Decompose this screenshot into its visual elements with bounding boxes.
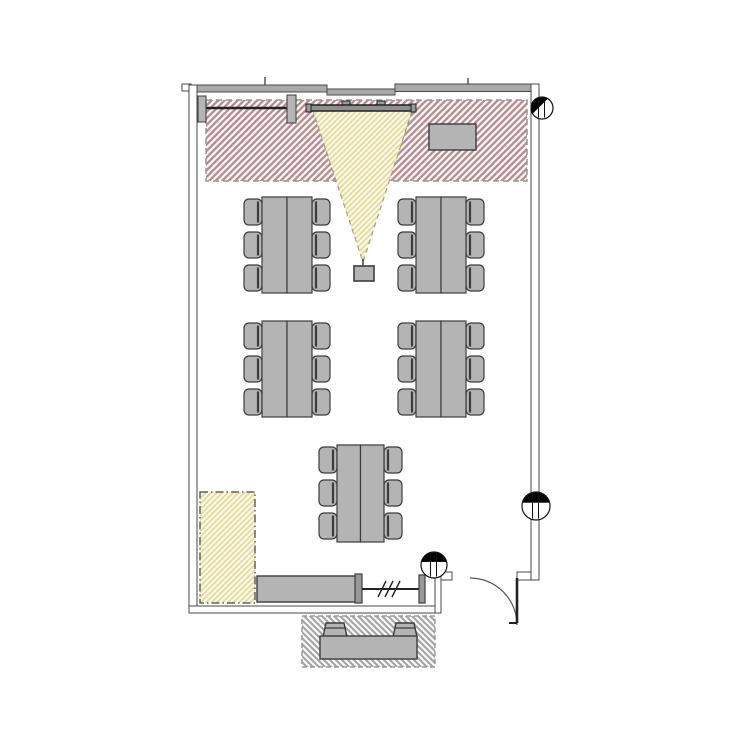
marker-filled-segment <box>422 552 447 561</box>
chair <box>244 323 262 349</box>
chair <box>466 265 484 291</box>
chair <box>312 199 330 225</box>
chair <box>398 232 416 258</box>
chair <box>244 356 262 382</box>
wall-top-a <box>189 85 327 92</box>
chair <box>398 356 416 382</box>
wall-top-b <box>327 89 395 95</box>
entrance-door <box>470 578 517 625</box>
table-group-mid-left <box>244 321 330 417</box>
table <box>262 321 287 417</box>
chair <box>312 265 330 291</box>
bench-backrest <box>323 623 347 637</box>
table <box>361 445 385 542</box>
storage-zone <box>200 492 255 603</box>
chair <box>244 389 262 415</box>
wall-top-c <box>395 84 531 92</box>
table <box>287 197 312 293</box>
counter-end-cap <box>355 574 362 603</box>
chair <box>398 199 416 225</box>
chair <box>466 199 484 225</box>
counter-and-partition <box>257 574 425 603</box>
counter <box>257 576 356 602</box>
chair <box>398 265 416 291</box>
chair <box>312 356 330 382</box>
chair <box>244 265 262 291</box>
chair <box>319 513 337 539</box>
floor-plan-drawing <box>0 0 750 750</box>
chair <box>312 232 330 258</box>
wall-bottom <box>189 606 441 613</box>
table <box>337 445 361 542</box>
table <box>441 321 466 417</box>
table <box>441 197 466 293</box>
screen-end-cap <box>306 104 311 112</box>
bench-backrest <box>393 623 417 637</box>
chair <box>244 199 262 225</box>
partition-post <box>419 575 425 603</box>
wall-door-stub-right <box>517 572 531 580</box>
table <box>262 197 287 293</box>
table <box>287 321 312 417</box>
marker-filled-segment <box>523 492 550 502</box>
chair <box>466 389 484 415</box>
screen-end-cap <box>411 104 416 112</box>
column-marker-door <box>421 552 447 578</box>
cabinet <box>429 124 476 150</box>
table-group-back-center <box>319 445 402 542</box>
table-group-front-right <box>398 197 484 293</box>
chair <box>312 389 330 415</box>
chair <box>466 232 484 258</box>
floor-plan-canvas <box>0 0 750 750</box>
chair <box>466 356 484 382</box>
chair <box>384 447 402 473</box>
bench-seat <box>320 636 417 659</box>
column-marker-right <box>522 492 550 520</box>
chair <box>398 323 416 349</box>
chair <box>244 232 262 258</box>
table-group-front-left <box>244 197 330 293</box>
projector <box>354 266 374 281</box>
table-group-mid-right <box>398 321 484 417</box>
chair <box>384 480 402 506</box>
whiteboard-cap <box>287 95 296 123</box>
chair <box>398 389 416 415</box>
chair <box>312 323 330 349</box>
chair <box>319 480 337 506</box>
door-swing-arc <box>470 578 517 625</box>
projection-screen <box>307 105 415 111</box>
table <box>416 321 441 417</box>
chair <box>319 447 337 473</box>
chair <box>466 323 484 349</box>
wall-left <box>189 85 197 613</box>
whiteboard-cap <box>198 96 206 122</box>
chair <box>384 513 402 539</box>
table <box>416 197 441 293</box>
